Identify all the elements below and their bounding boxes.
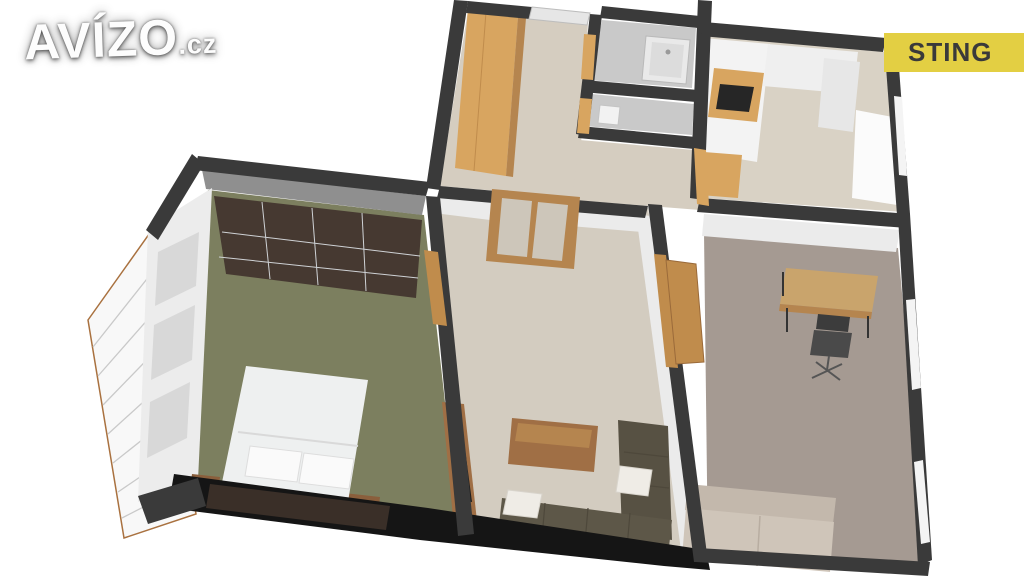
- office-chair-back: [816, 314, 850, 332]
- cooktop: [716, 84, 754, 112]
- living-double-door: [486, 189, 580, 269]
- corridor-floor: [572, 140, 700, 210]
- sting-badge: STING: [884, 33, 1024, 72]
- office-chair-seat: [810, 330, 852, 358]
- bed-pillow-left: [245, 446, 302, 482]
- listing-photo: AVÍZO.cz STING: [0, 0, 1024, 576]
- sofa-pillow-right: [616, 466, 652, 496]
- sofa-pillow-left: [503, 490, 542, 518]
- logo-suffix: .cz: [178, 29, 218, 60]
- wc-sink: [598, 105, 620, 125]
- bed-pillow-right: [299, 453, 354, 489]
- avizo-logo: AVÍZO.cz: [23, 7, 218, 72]
- floorplan-render: [0, 0, 1024, 576]
- logo-text: AVÍZO: [23, 9, 179, 70]
- kitchen-tall-unit: [818, 58, 860, 132]
